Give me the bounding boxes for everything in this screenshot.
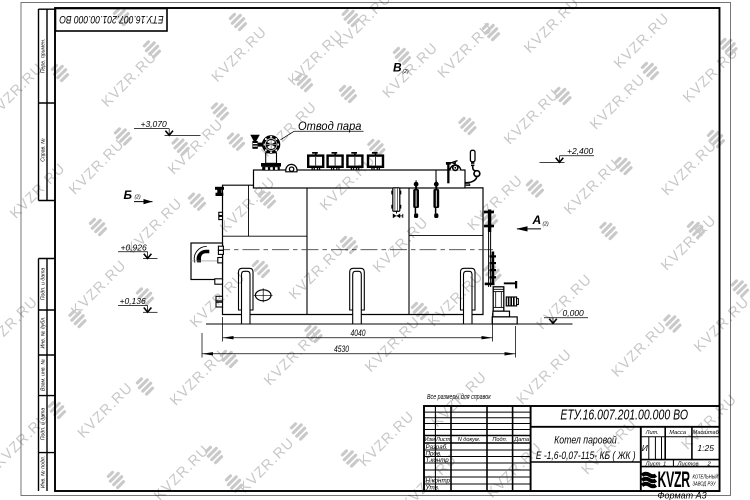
svg-text:4530: 4530 (334, 344, 349, 354)
svg-text:1:25: 1:25 (697, 443, 714, 453)
svg-text:Справ. №: Справ. № (41, 138, 47, 162)
svg-text:KVZR: KVZR (658, 467, 691, 492)
svg-text:И: И (642, 443, 649, 453)
svg-text:4040: 4040 (351, 328, 366, 338)
svg-text:Формат А3: Формат А3 (657, 491, 706, 500)
svg-text:А: А (532, 213, 542, 227)
svg-text:Подп. и дата: Подп. и дата (41, 268, 47, 301)
svg-text:Взам. инв. №: Взам. инв. № (41, 359, 47, 391)
svg-text:Инв. № подл.: Инв. № подл. (41, 456, 47, 488)
svg-text:Масса: Масса (669, 430, 686, 436)
svg-text:(2): (2) (135, 195, 141, 201)
svg-text:Дата: Дата (513, 437, 529, 443)
svg-text:N докум.: N докум. (458, 437, 481, 443)
svg-text:Изм: Изм (425, 437, 436, 443)
svg-text:Подп.: Подп. (492, 437, 507, 443)
svg-text:+2,400: +2,400 (567, 146, 594, 156)
svg-text:(2): (2) (543, 222, 549, 228)
svg-text:+3,070: +3,070 (141, 119, 168, 129)
svg-text:ЕТУ.16.007.201.00.000 ВО: ЕТУ.16.007.201.00.000 ВО (59, 12, 164, 24)
svg-text:ЗАВОД РЭУ: ЗАВОД РЭУ (693, 481, 717, 486)
svg-text:Лит.: Лит. (645, 430, 659, 436)
svg-text:Инв. № дубл.: Инв. № дубл. (41, 317, 47, 349)
svg-text:Лист: Лист (435, 437, 451, 443)
svg-text:Б: Б (124, 188, 133, 202)
